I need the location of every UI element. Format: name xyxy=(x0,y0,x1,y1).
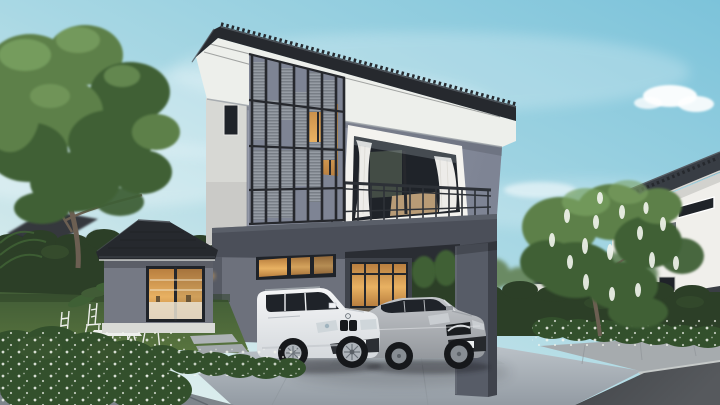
architectural-render: 3D architectural rendering of a modern t… xyxy=(0,0,720,405)
suv-headlight xyxy=(360,319,377,330)
mid-shrub-row xyxy=(142,345,306,379)
sedan-mirror xyxy=(446,306,453,310)
wing-base xyxy=(102,323,215,333)
louver-screen xyxy=(249,54,345,225)
wing-kitchen-window xyxy=(146,266,205,322)
upper-side-window xyxy=(224,105,238,135)
window-mullion xyxy=(404,151,406,214)
suv-roundel xyxy=(346,314,351,319)
scene xyxy=(0,0,720,405)
suv-mirror xyxy=(329,303,336,308)
transom-window xyxy=(256,254,336,280)
